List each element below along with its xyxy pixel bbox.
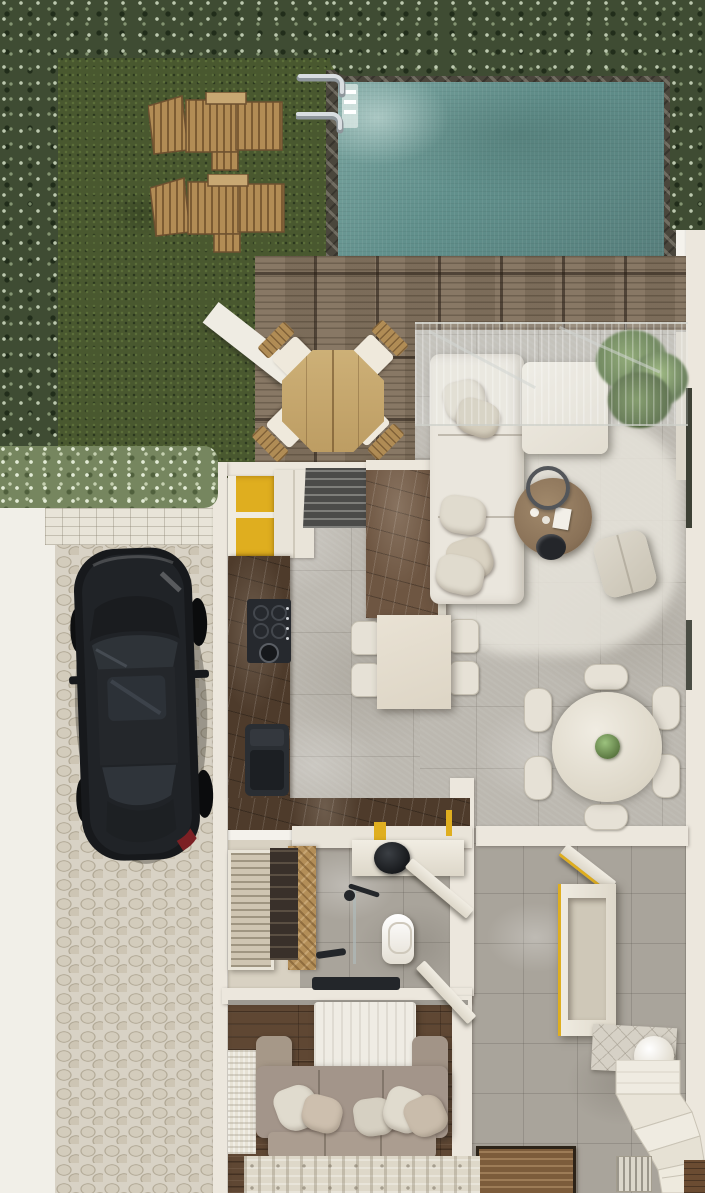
bedroom-sofa-seat — [268, 1132, 436, 1158]
bedroom-rug — [244, 1156, 480, 1193]
wood-sliver-corner — [684, 1160, 705, 1193]
sidewalk — [0, 478, 57, 1193]
doormat-wood — [476, 1146, 576, 1193]
pergola-glass-canopy — [415, 322, 688, 426]
table-centerpiece-plant — [595, 734, 620, 759]
round-chair-top — [584, 664, 628, 690]
hedge-left — [0, 0, 58, 505]
toilet — [382, 914, 414, 964]
vessel-basin — [374, 842, 410, 874]
kitchen-sink — [245, 724, 289, 796]
wardrobe-interior — [270, 848, 298, 960]
cabinet-yellow-accent-2 — [446, 810, 452, 836]
cooktop — [247, 599, 291, 663]
kitchen-cabinet-yellow — [228, 476, 274, 556]
window-slot-2 — [686, 620, 692, 690]
shower-head — [344, 890, 355, 901]
step-bench — [303, 468, 371, 528]
coffee-table-ring-decor — [526, 466, 570, 510]
hall-bench — [558, 884, 616, 1036]
sun-lounger-2 — [150, 174, 290, 256]
swimming-pool — [338, 82, 664, 260]
dining-chair-3 — [449, 619, 479, 653]
round-chair-left-1 — [524, 688, 552, 732]
tv — [312, 977, 400, 990]
hedge-top-pool — [330, 0, 705, 76]
wall-right — [686, 222, 705, 1193]
dining-table — [377, 615, 451, 709]
round-chair-bottom — [584, 804, 628, 830]
round-chair-left-2 — [524, 756, 552, 800]
dining-chair-4 — [449, 661, 479, 695]
wall-hall-divider — [476, 826, 688, 846]
sun-lounger-1 — [148, 92, 288, 174]
floor-plan-render — [0, 0, 705, 1193]
garden-low-wall — [45, 505, 217, 545]
small-mat — [616, 1156, 652, 1192]
car — [62, 542, 219, 869]
hedge-flowering-row — [0, 446, 218, 508]
wardrobe-slatted — [228, 850, 274, 970]
bedroom-side-texture — [228, 1050, 256, 1154]
hedge-right — [670, 0, 705, 230]
